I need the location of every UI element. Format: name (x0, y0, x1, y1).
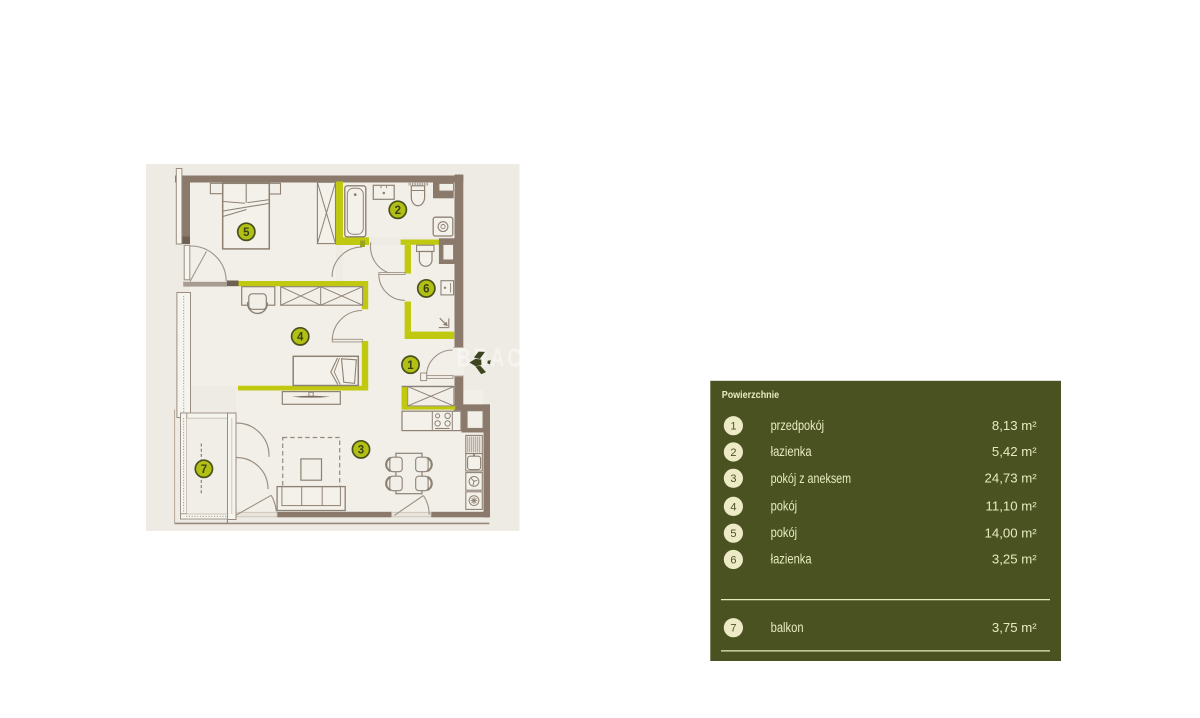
svg-text:1: 1 (407, 360, 414, 372)
svg-text:5,42 m²: 5,42 m² (992, 444, 1037, 459)
svg-text:3: 3 (730, 473, 736, 485)
svg-text:5: 5 (243, 227, 250, 239)
svg-text:24,73 m²: 24,73 m² (985, 470, 1038, 485)
svg-text:pokój: pokój (771, 525, 798, 540)
svg-text:4: 4 (730, 501, 736, 513)
svg-text:łazienka: łazienka (771, 444, 812, 459)
svg-text:2: 2 (730, 447, 736, 459)
svg-text:3,25 m²: 3,25 m² (992, 552, 1037, 567)
svg-text:4: 4 (297, 332, 304, 344)
svg-text:łazienka: łazienka (771, 552, 812, 567)
svg-text:7: 7 (730, 623, 736, 635)
svg-text:5: 5 (730, 528, 736, 540)
svg-text:6: 6 (730, 554, 736, 566)
svg-text:pokój z aneksem: pokój z aneksem (771, 471, 852, 486)
svg-text:8,13 m²: 8,13 m² (992, 418, 1037, 433)
svg-text:11,10 m²: 11,10 m² (986, 499, 1038, 514)
svg-text:3: 3 (358, 445, 364, 457)
svg-text:pokój: pokój (771, 499, 798, 514)
svg-text:6: 6 (423, 284, 429, 296)
svg-text:przedpokój: przedpokój (771, 418, 825, 433)
svg-text:2: 2 (395, 205, 401, 217)
svg-text:BRACIA: BRACIA (457, 343, 550, 373)
svg-text:1: 1 (730, 421, 736, 433)
svg-text:7: 7 (201, 464, 207, 476)
svg-text:Powierzchnie: Powierzchnie (722, 389, 780, 401)
svg-text:3,75 m²: 3,75 m² (992, 620, 1037, 635)
svg-text:balkon: balkon (771, 620, 804, 635)
svg-text:14,00 m²: 14,00 m² (985, 525, 1038, 540)
